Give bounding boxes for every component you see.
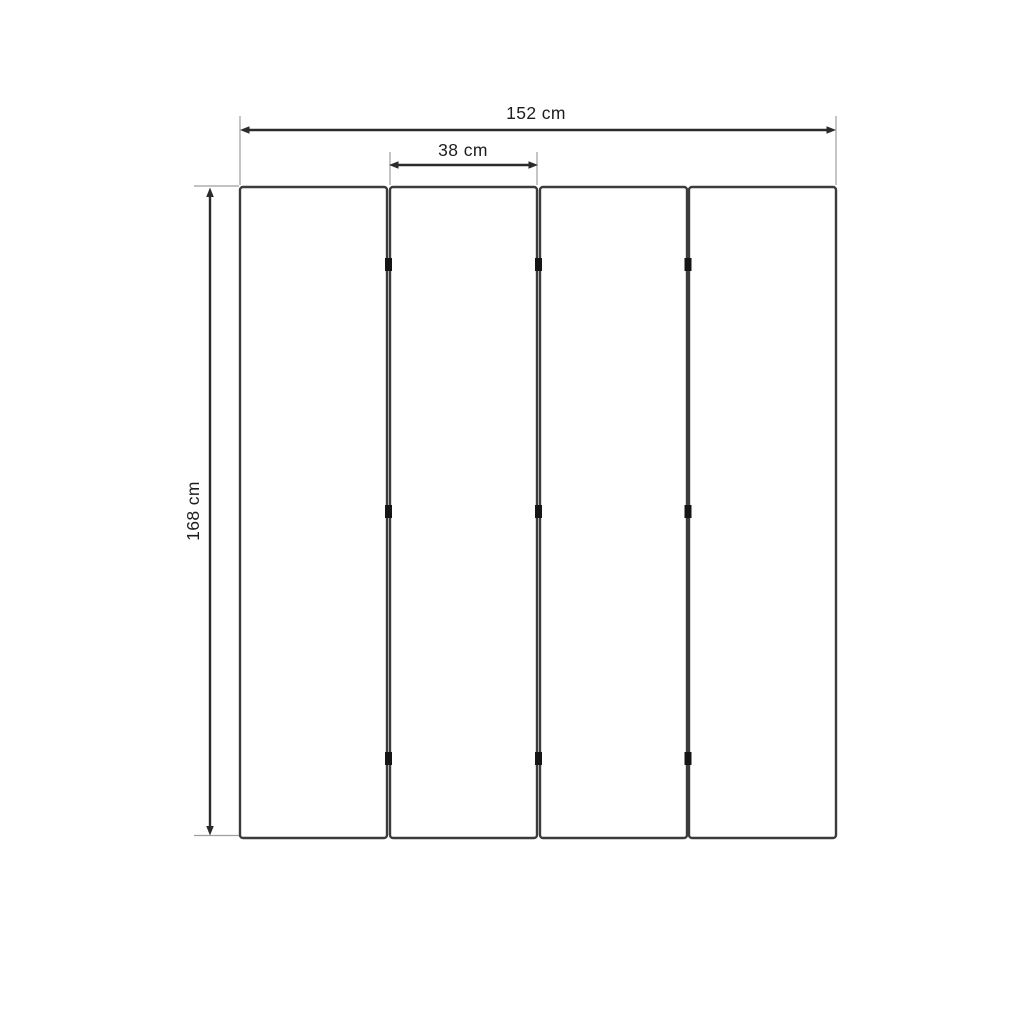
arrowhead-right-icon <box>827 126 837 134</box>
panel-2 <box>390 187 537 838</box>
panel-4 <box>689 187 836 838</box>
hinge-icon <box>685 752 692 765</box>
arrowhead-up-icon <box>206 188 214 198</box>
dimension-height: 168 cm <box>183 186 239 836</box>
panel-3 <box>540 187 687 838</box>
dimension-total-width: 152 cm <box>240 103 836 185</box>
arrowhead-left-icon <box>240 126 250 134</box>
height-label: 168 cm <box>183 481 203 541</box>
dimension-panel-width: 38 cm <box>389 140 538 185</box>
hinge-icon <box>385 505 392 518</box>
folding-screen-diagram: 152 cm 38 cm 168 cm <box>0 0 1024 1024</box>
hinge-icon <box>385 258 392 271</box>
canvas: 152 cm 38 cm 168 cm <box>0 0 1024 1024</box>
hinge-icon <box>385 752 392 765</box>
panel-width-label: 38 cm <box>438 140 488 160</box>
total-width-label: 152 cm <box>506 103 566 123</box>
hinge-icon <box>535 258 542 271</box>
hinge-icon <box>535 752 542 765</box>
hinge-icon <box>685 505 692 518</box>
hinge-icon <box>535 505 542 518</box>
hinge-icon <box>685 258 692 271</box>
arrowhead-down-icon <box>206 826 214 836</box>
panel-1 <box>240 187 387 838</box>
